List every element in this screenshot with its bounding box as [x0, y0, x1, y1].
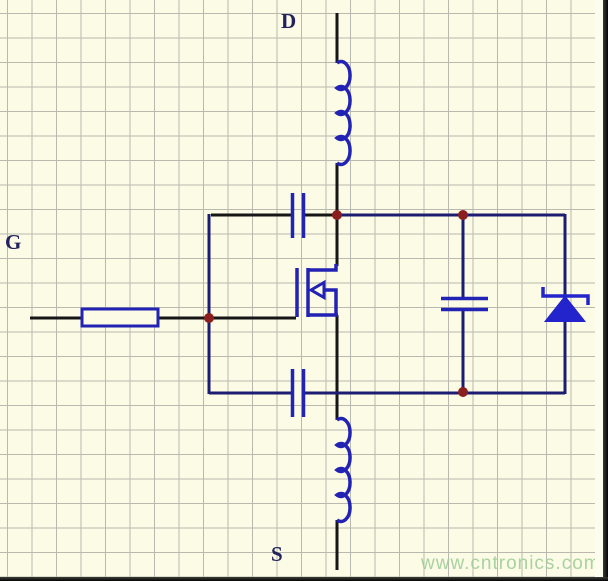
- components: [82, 62, 588, 522]
- gate-terminal-label: G: [5, 232, 21, 253]
- wires-navy: [209, 214, 565, 394]
- junction-dot-bottom-right: [458, 387, 468, 397]
- junction-dot-gate: [204, 313, 214, 323]
- gate-resistor: [82, 309, 158, 326]
- source-inductor: [337, 419, 350, 522]
- mosfet-body-arrow-icon: [311, 283, 324, 298]
- circuit-canvas: [0, 0, 608, 581]
- gate-source-capacitor: [293, 369, 304, 417]
- mosfet-drain-stub: [308, 264, 336, 270]
- watermark-text: www.cntronics.com: [421, 553, 601, 575]
- source-terminal-label: S: [271, 544, 283, 565]
- mosfet: [297, 264, 338, 317]
- drain-terminal-label: D: [281, 11, 296, 32]
- schematic-page: D G S www.cntronics.com: [0, 0, 608, 581]
- diode-triangle-icon: [546, 297, 584, 321]
- junction-dot-top-mid: [332, 210, 342, 220]
- junction-dot-top-right: [458, 210, 468, 220]
- gate-drain-capacitor: [293, 193, 304, 238]
- drain-source-capacitor: [441, 299, 488, 310]
- drain-inductor: [337, 62, 350, 165]
- wires-black: [30, 13, 338, 570]
